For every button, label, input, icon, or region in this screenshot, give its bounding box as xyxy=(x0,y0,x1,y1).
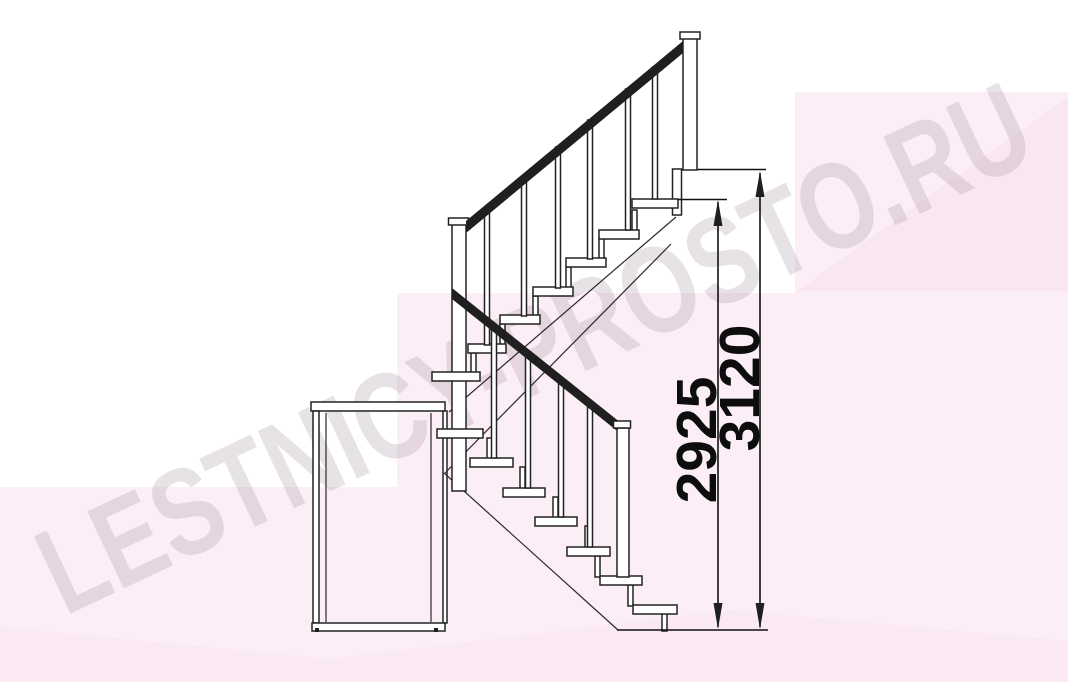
drawing-canvas: LESTNICY-PROSTO.RU xyxy=(0,0,1068,682)
tread xyxy=(567,547,610,556)
baluster xyxy=(588,407,593,547)
tread xyxy=(437,429,483,438)
platform-foot xyxy=(434,628,438,632)
platform-right-leg xyxy=(443,411,447,623)
top-newel-post-cap xyxy=(680,32,700,39)
top-newel-post xyxy=(683,38,697,170)
platform-left-leg xyxy=(313,411,319,623)
baluster xyxy=(559,382,564,517)
tread-support xyxy=(471,353,476,373)
baluster xyxy=(626,89,631,230)
tread-support xyxy=(553,497,558,518)
baluster xyxy=(588,120,593,259)
tread xyxy=(599,230,639,239)
dimension-label-3120: 3120 xyxy=(708,325,772,452)
tread-support xyxy=(595,556,600,577)
tread xyxy=(535,517,577,526)
tread-support xyxy=(533,296,538,316)
tread xyxy=(533,287,573,296)
baluster xyxy=(653,67,658,199)
staircase-technical-drawing: LESTNICY-PROSTO.RU xyxy=(0,0,1068,682)
platform-bottom-rail xyxy=(312,623,445,631)
tread-support xyxy=(566,267,571,288)
newel-post-cap xyxy=(449,218,469,225)
platform-foot xyxy=(315,628,319,632)
baluster xyxy=(556,147,561,288)
baluster xyxy=(526,354,531,488)
tread-support xyxy=(628,585,633,606)
tread-support xyxy=(632,210,637,231)
tread-support xyxy=(520,467,525,489)
tread xyxy=(632,199,678,208)
tread xyxy=(503,488,545,497)
baluster xyxy=(522,178,527,316)
tread xyxy=(432,372,480,381)
lower-rail-end-post-cap xyxy=(614,421,631,428)
tread xyxy=(566,258,606,267)
tread xyxy=(500,315,540,324)
tread-support xyxy=(662,612,667,631)
tread xyxy=(633,605,677,614)
newel-post xyxy=(452,224,466,491)
baluster xyxy=(492,326,497,458)
tread-support xyxy=(599,238,604,259)
tread xyxy=(470,458,513,467)
platform-top-board xyxy=(311,402,445,411)
lower-rail-end-post xyxy=(617,428,629,577)
